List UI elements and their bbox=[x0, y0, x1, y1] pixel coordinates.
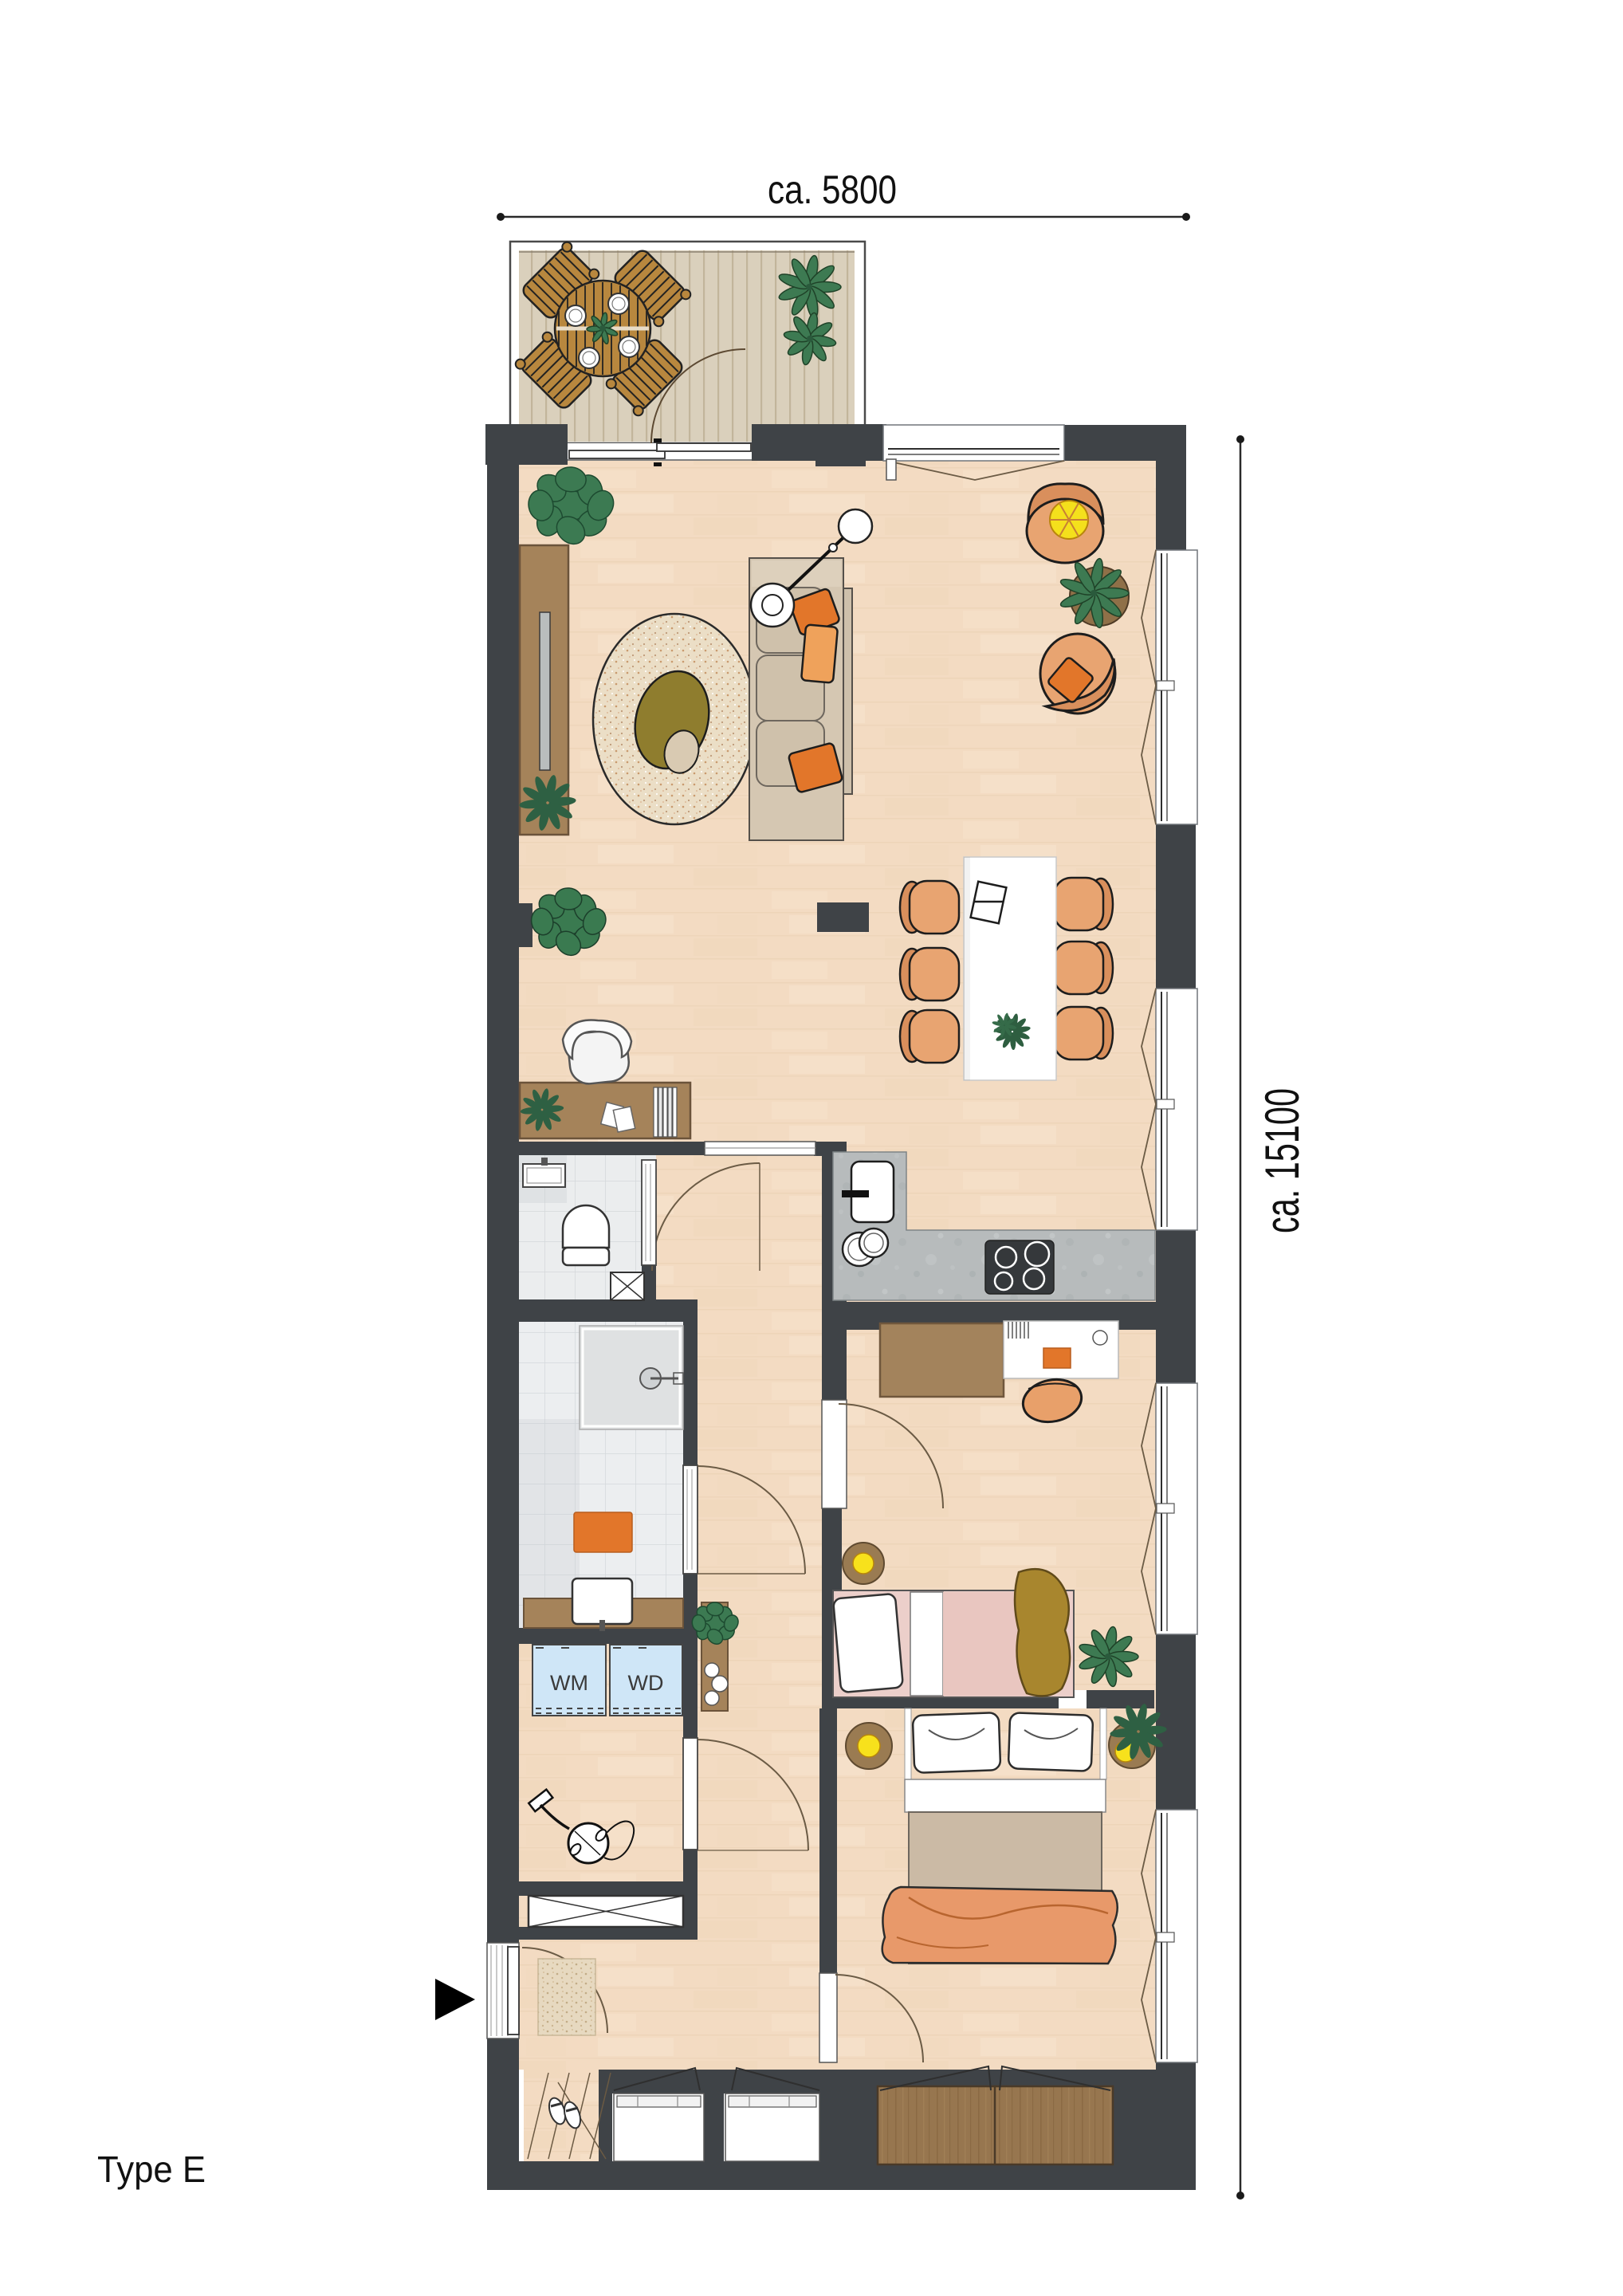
svg-text:ca. 15100: ca. 15100 bbox=[1256, 1088, 1309, 1233]
svg-text:Type E: Type E bbox=[97, 2149, 206, 2190]
svg-text:WM: WM bbox=[550, 1671, 588, 1695]
svg-text:ca. 5800: ca. 5800 bbox=[768, 167, 897, 212]
svg-text:WD: WD bbox=[628, 1671, 664, 1695]
